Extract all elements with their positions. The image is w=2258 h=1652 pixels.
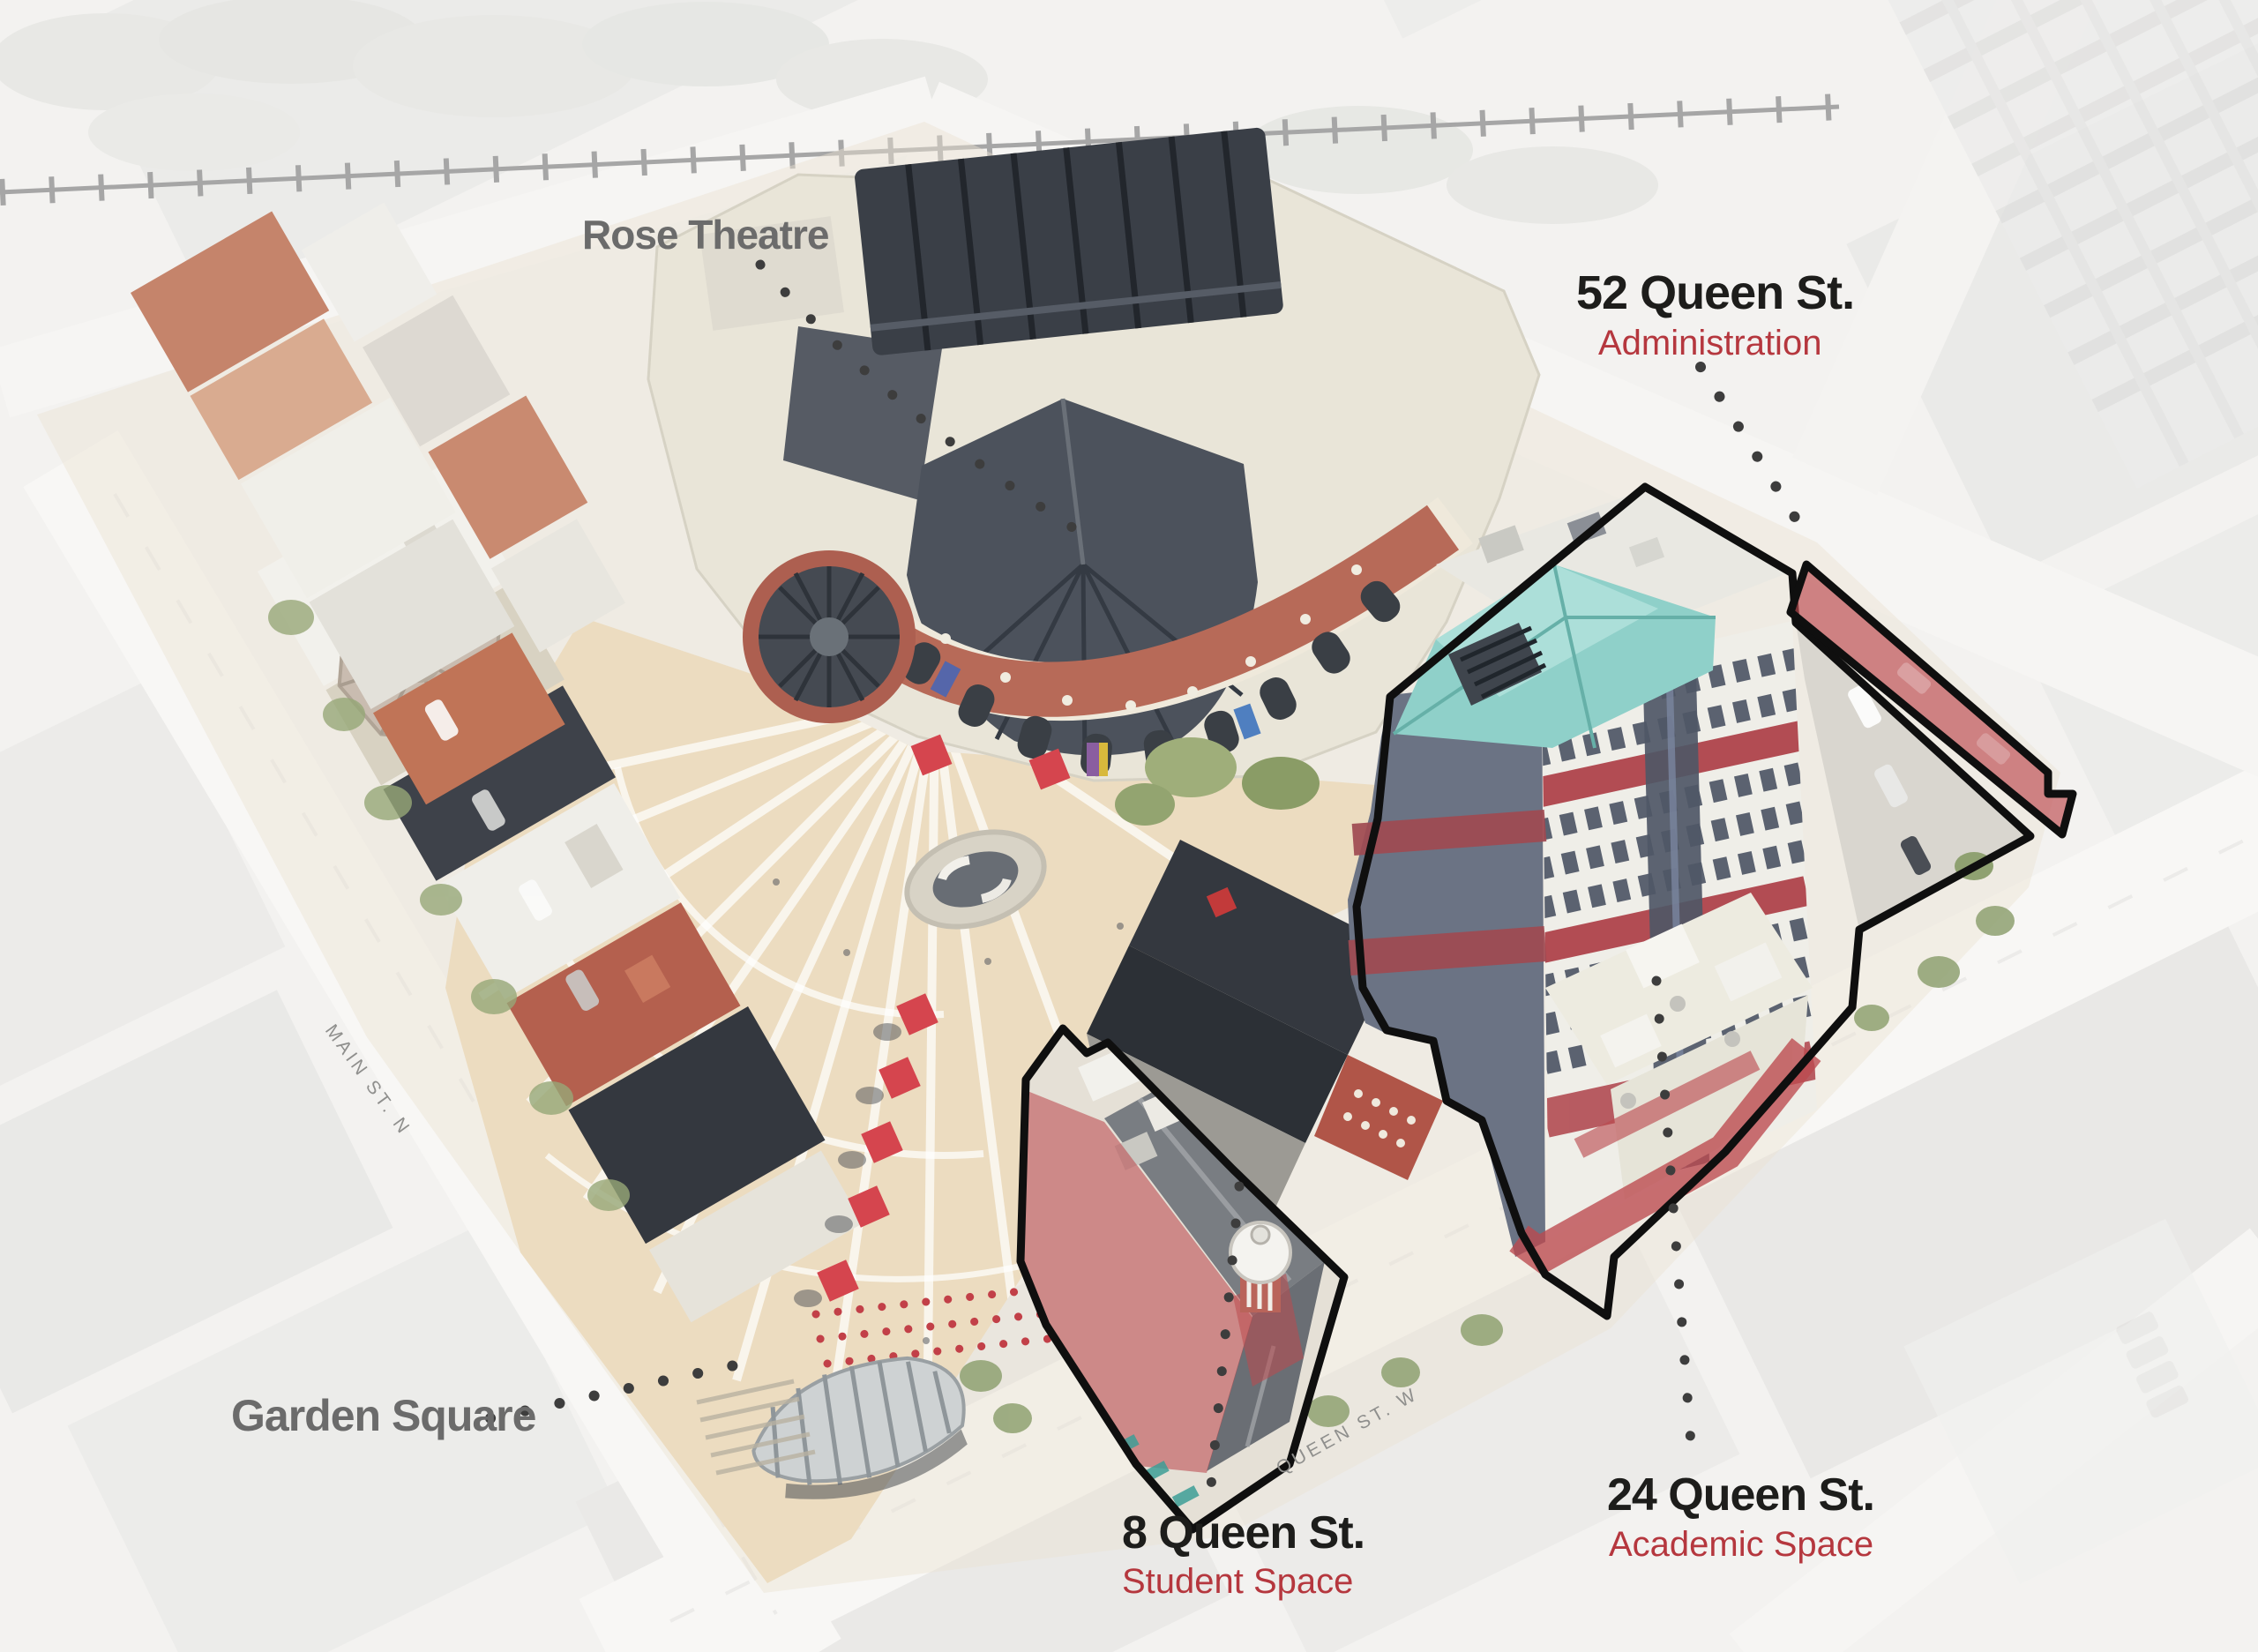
8-queen-label: 8 Queen St. bbox=[1122, 1507, 1365, 1559]
52-queen-sublabel: Administration bbox=[1598, 324, 1821, 363]
campus-aerial-map: Rose Theatre 52 Queen St. Administration… bbox=[0, 0, 2258, 1652]
aerial-map-canvas: Rose Theatre 52 Queen St. Administration… bbox=[0, 0, 2258, 1652]
24-queen-sublabel: Academic Space bbox=[1609, 1525, 1873, 1564]
24-queen-label: 24 Queen St. bbox=[1607, 1469, 1874, 1521]
garden-square-label: Garden Square bbox=[231, 1391, 536, 1440]
theatre-rotunda bbox=[743, 550, 916, 723]
52-queen-label: 52 Queen St. bbox=[1576, 266, 1854, 319]
rose-theatre-label: Rose Theatre bbox=[582, 212, 829, 258]
8-queen-sublabel: Student Space bbox=[1122, 1562, 1353, 1601]
